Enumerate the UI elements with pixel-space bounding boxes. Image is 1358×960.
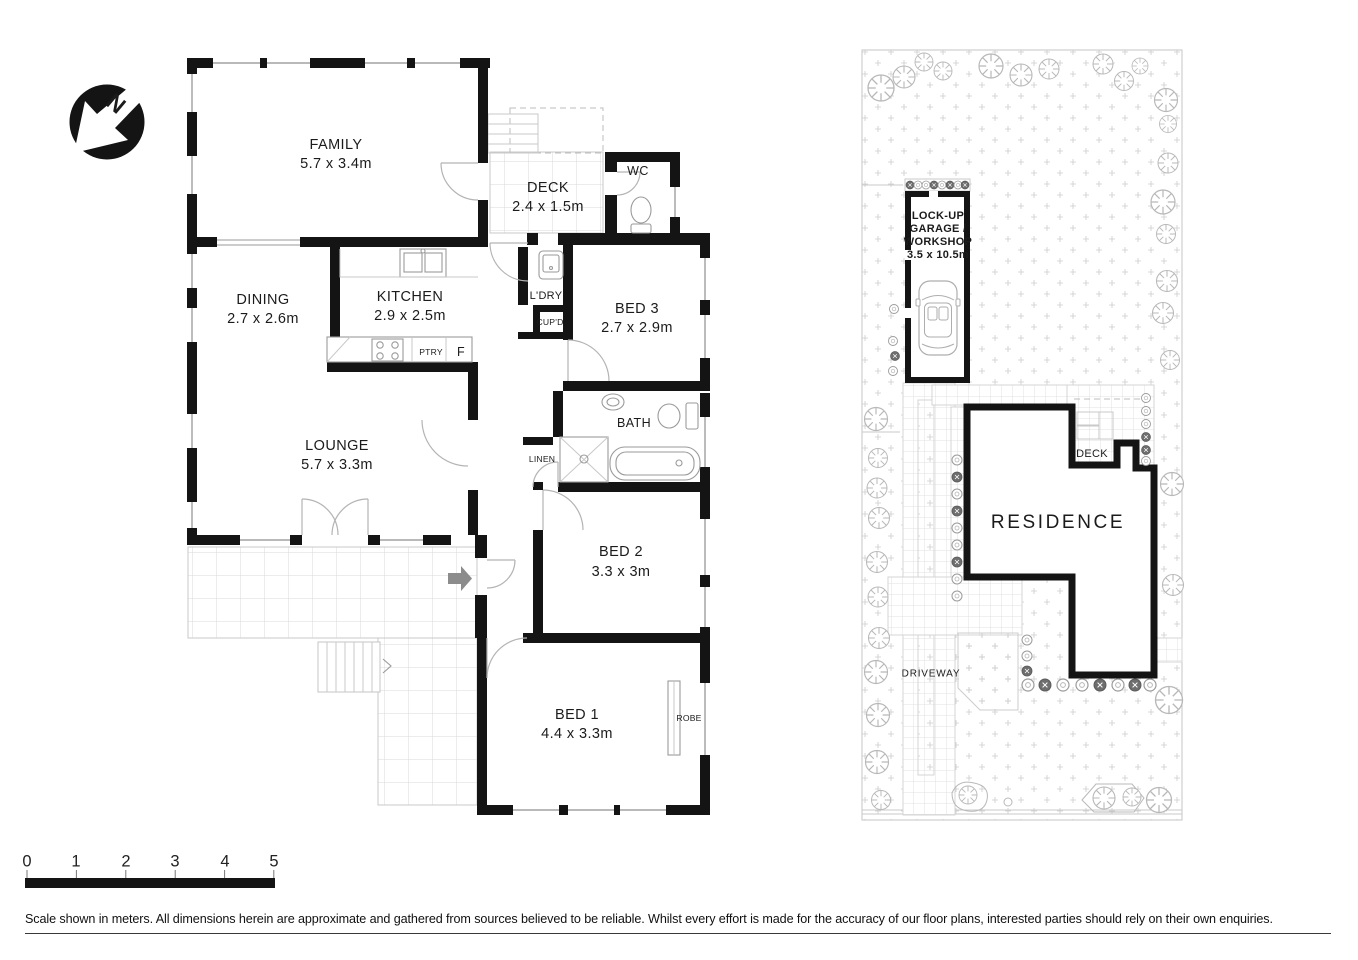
- garage-label-line1: LOCK-UP: [912, 210, 964, 222]
- bath-fixtures: [560, 394, 700, 482]
- stove-icon: [372, 339, 403, 361]
- scale-tick-3: 3: [170, 853, 179, 872]
- driveway-label: DRIVEWAY: [902, 669, 961, 680]
- room-label-pantry: PTRY: [419, 347, 443, 357]
- residence-label: RESIDENCE: [991, 512, 1125, 534]
- kitchen-bench: [327, 337, 472, 362]
- scale-tick-1: 1: [71, 853, 80, 872]
- toilet-icon: [658, 404, 680, 428]
- pergola-dashed-outline: [510, 108, 603, 153]
- scale-tick-0: 0: [22, 853, 31, 872]
- room-dims-dining: 2.7 x 2.6m: [227, 311, 299, 327]
- room-dims-kitchen: 2.9 x 2.5m: [374, 308, 446, 324]
- north-arrow-icon: [70, 85, 145, 160]
- room-label-linen: LINEN: [529, 454, 555, 464]
- site-plan: [862, 50, 1184, 820]
- room-label-bath: BATH: [617, 416, 651, 430]
- room-dims-bed1: 4.4 x 3.3m: [541, 726, 613, 742]
- room-dims-bed3: 2.7 x 2.9m: [601, 320, 673, 336]
- garage-label-line3: WORKSHOP: [904, 236, 972, 248]
- garage-dims: 3.5 x 10.5m: [907, 249, 969, 261]
- scale-tick-5: 5: [269, 853, 278, 872]
- room-label-robe: ROBE: [676, 713, 701, 723]
- disclaimer-text: Scale shown in meters. All dimensions he…: [25, 912, 1331, 934]
- room-label-bed3: BED 3: [615, 301, 659, 317]
- room-dims-bed2: 3.3 x 3m: [592, 564, 651, 580]
- scale-tick-4: 4: [220, 853, 229, 872]
- car-icon: [916, 281, 960, 355]
- cased-opening-lines: [217, 240, 300, 245]
- room-label-wc: WC: [627, 164, 649, 178]
- site-deck-label: DECK: [1076, 448, 1108, 460]
- floorplan-page: N FAMILY 5.7 x 3.4m DECK 2.4 x 1.5m WC D…: [0, 0, 1358, 960]
- room-label-lounge: LOUNGE: [305, 438, 369, 454]
- room-label-bed1: BED 1: [555, 707, 599, 723]
- scale-bar: [25, 870, 275, 888]
- room-label-laundry: L'DRY: [530, 290, 563, 302]
- patio-tiles: [188, 547, 477, 805]
- garage-label-line2: GARAGE /: [910, 223, 967, 235]
- kitchen-sink-icon: [400, 249, 446, 277]
- laundry-tub-icon: [539, 251, 563, 279]
- room-dims-family: 5.7 x 3.4m: [300, 156, 372, 172]
- room-dims-deck: 2.4 x 1.5m: [512, 199, 584, 215]
- room-label-deck: DECK: [527, 180, 569, 196]
- wc-toilet-icon: [631, 197, 651, 233]
- room-dims-lounge: 5.7 x 3.3m: [301, 457, 373, 473]
- plan-drawing: [0, 0, 1358, 960]
- room-label-bed2: BED 2: [599, 544, 643, 560]
- room-label-kitchen: KITCHEN: [377, 289, 443, 305]
- room-label-cupboard: CUP'D: [537, 317, 564, 327]
- room-label-family: FAMILY: [310, 137, 363, 153]
- room-label-dining: DINING: [236, 292, 289, 308]
- scale-tick-2: 2: [121, 853, 130, 872]
- fridge-label: F: [457, 345, 465, 359]
